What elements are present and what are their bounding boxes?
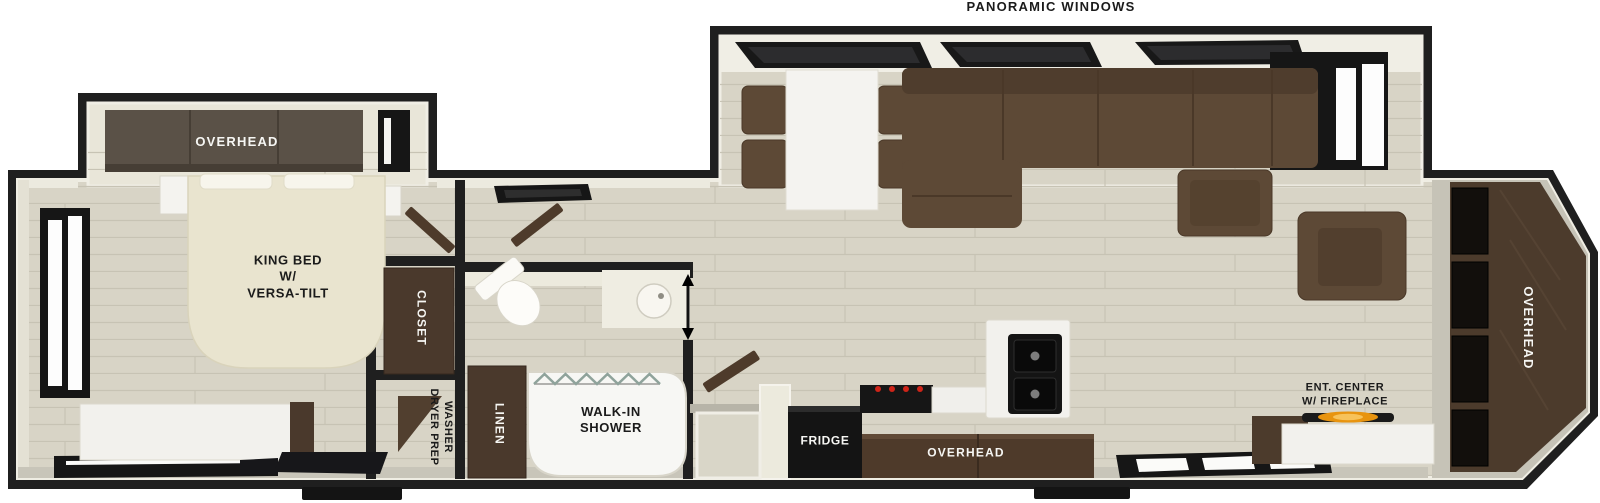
king-bed-label-line2: W/: [247, 269, 329, 285]
king-bed-label-line3: VERSA-TILT: [247, 285, 329, 301]
king-bed-label: KING BED W/ VERSA-TILT: [247, 253, 329, 302]
washer-prep-label-line2: DRYER PREP: [426, 388, 440, 465]
bathroom-sink: [602, 270, 690, 328]
fireplace-flame: [1302, 412, 1394, 423]
ottoman: [1178, 170, 1272, 236]
kitchen-island-sink: [986, 320, 1070, 418]
panoramic-windows-label: PANORAMIC WINDOWS: [967, 0, 1136, 15]
ent-center-label-line2: W/ FIREPLACE: [1302, 395, 1388, 409]
washer-prep-label-line1: WASHER: [440, 388, 454, 465]
floorplan-canvas: PANORAMIC WINDOWS OVERHEAD KING BED W/ V…: [0, 0, 1600, 503]
window-panoramic-2: [940, 42, 1102, 67]
kitchen-overhead-label: OVERHEAD: [927, 446, 1005, 461]
window-front-left: [40, 208, 90, 398]
bedroom-overhead-label: OVERHEAD: [195, 134, 278, 150]
washer-prep-label: WASHER DRYER PREP: [426, 388, 454, 465]
window-hallway-top: [494, 184, 592, 203]
dinette-table: [786, 70, 878, 210]
walk-in-shower-label: WALK-IN SHOWER: [580, 404, 642, 437]
rear-overhead-label: OVERHEAD: [1520, 286, 1536, 369]
closet-label: CLOSET: [414, 290, 429, 346]
window-panoramic-1: [735, 42, 932, 68]
ent-center-label: ENT. CENTER W/ FIREPLACE: [1302, 381, 1388, 409]
floorplan-drawing: [0, 0, 1600, 503]
walk-in-shower-label-line1: WALK-IN: [580, 404, 642, 420]
bedroom-dresser: [80, 402, 314, 460]
king-bed-label-line1: KING BED: [247, 253, 329, 269]
stove: [860, 385, 933, 413]
recliner: [1298, 212, 1406, 300]
ent-center-label-line1: ENT. CENTER: [1302, 381, 1388, 395]
window-bedroom-slide: [378, 110, 410, 172]
fridge-label: FRIDGE: [801, 434, 850, 449]
linen-label: LINEN: [492, 403, 507, 445]
walk-in-shower-label-line2: SHOWER: [580, 420, 642, 436]
nightstand-left: [160, 176, 190, 214]
